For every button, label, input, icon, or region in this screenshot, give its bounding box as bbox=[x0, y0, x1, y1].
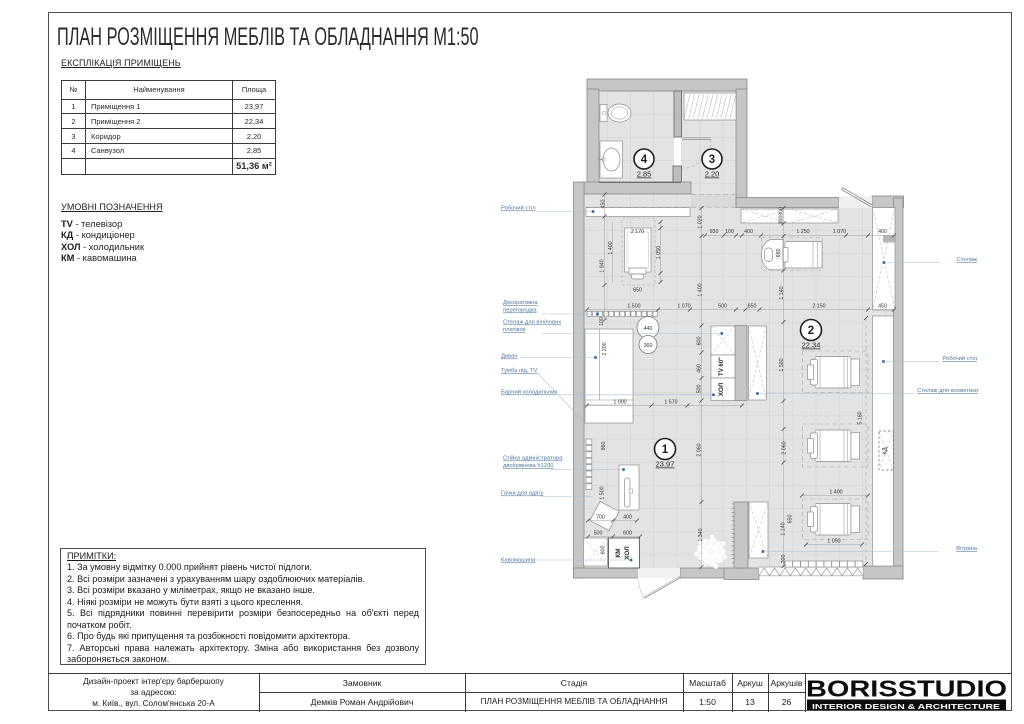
svg-text:Гачки для одягу: Гачки для одягу bbox=[501, 491, 544, 497]
svg-text:1 500: 1 500 bbox=[600, 486, 606, 499]
svg-text:Вітрина: Вітрина bbox=[956, 546, 977, 552]
svg-text:Стелаж для вінілових: Стелаж для вінілових bbox=[503, 320, 561, 326]
svg-text:2.85: 2.85 bbox=[637, 170, 652, 179]
svg-text:TV 60″: TV 60″ bbox=[719, 357, 725, 376]
svg-text:3: 3 bbox=[709, 154, 715, 166]
svg-text:450: 450 bbox=[601, 200, 607, 209]
svg-text:700: 700 bbox=[596, 515, 605, 521]
svg-text:1 940: 1 940 bbox=[600, 259, 606, 272]
svg-text:Стелаж: Стелаж bbox=[957, 257, 977, 263]
svg-text:Диван: Диван bbox=[501, 354, 518, 360]
svg-text:2 200: 2 200 bbox=[602, 342, 608, 355]
svg-text:1 070: 1 070 bbox=[677, 304, 690, 310]
svg-text:1 020: 1 020 bbox=[698, 215, 704, 228]
svg-text:Стійка адміністратора: Стійка адміністратора bbox=[503, 455, 563, 462]
svg-text:660: 660 bbox=[776, 249, 782, 258]
svg-text:Робочий стіл: Робочий стіл bbox=[942, 355, 977, 362]
svg-text:1: 1 bbox=[662, 444, 669, 456]
svg-text:360: 360 bbox=[644, 343, 653, 349]
svg-text:1 070: 1 070 bbox=[833, 229, 846, 235]
svg-text:600: 600 bbox=[697, 337, 703, 346]
svg-text:400: 400 bbox=[744, 229, 753, 235]
svg-text:930: 930 bbox=[710, 229, 719, 235]
svg-text:600: 600 bbox=[601, 546, 607, 555]
svg-text:300: 300 bbox=[779, 216, 785, 225]
svg-text:Барний холодильник: Барний холодильник bbox=[501, 389, 557, 396]
svg-text:500: 500 bbox=[594, 531, 603, 537]
svg-text:100: 100 bbox=[599, 317, 605, 326]
svg-text:650: 650 bbox=[748, 304, 757, 310]
svg-text:двохрівнева h1200: двохрівнева h1200 bbox=[503, 463, 553, 469]
svg-text:200: 200 bbox=[781, 555, 787, 564]
svg-text:КМ: КМ bbox=[615, 548, 622, 557]
svg-text:2 060: 2 060 bbox=[697, 443, 703, 456]
svg-text:ХОЛ: ХОЛ bbox=[718, 382, 725, 396]
svg-text:400: 400 bbox=[623, 515, 632, 521]
svg-text:1 500: 1 500 bbox=[627, 304, 640, 310]
svg-text:1 250: 1 250 bbox=[796, 229, 809, 235]
svg-text:Стелаж для косметики: Стелаж для косметики bbox=[917, 388, 978, 394]
svg-text:1 400: 1 400 bbox=[608, 241, 614, 254]
svg-text:1 050: 1 050 bbox=[656, 246, 662, 259]
svg-text:2.20: 2.20 bbox=[705, 170, 720, 179]
svg-text:650: 650 bbox=[788, 515, 794, 524]
svg-text:860: 860 bbox=[601, 442, 607, 451]
svg-text:440: 440 bbox=[644, 326, 653, 332]
svg-text:1 570: 1 570 bbox=[664, 400, 677, 406]
svg-text:300: 300 bbox=[779, 207, 785, 216]
svg-text:500: 500 bbox=[697, 385, 703, 394]
svg-text:2 150: 2 150 bbox=[812, 304, 825, 310]
svg-text:1 340: 1 340 bbox=[698, 528, 704, 541]
svg-text:400: 400 bbox=[878, 229, 887, 235]
svg-text:ХОЛ: ХОЛ bbox=[624, 546, 631, 560]
svg-text:1 140: 1 140 bbox=[781, 522, 787, 535]
svg-text:КД: КД bbox=[883, 447, 889, 454]
svg-text:450: 450 bbox=[878, 304, 887, 310]
svg-text:1 400: 1 400 bbox=[698, 283, 704, 296]
svg-text:23.97: 23.97 bbox=[656, 460, 675, 469]
svg-text:Кавомашина: Кавомашина bbox=[501, 558, 536, 564]
svg-text:22.34: 22.34 bbox=[802, 341, 821, 350]
svg-text:460: 460 bbox=[697, 364, 703, 373]
svg-text:1 000: 1 000 bbox=[613, 400, 626, 406]
svg-text:Робочий стіл: Робочий стіл bbox=[501, 205, 536, 212]
svg-text:1 050: 1 050 bbox=[827, 539, 840, 545]
svg-text:2 060: 2 060 bbox=[782, 441, 788, 454]
svg-text:4: 4 bbox=[641, 154, 648, 166]
svg-text:1 140: 1 140 bbox=[779, 286, 785, 299]
svg-text:100: 100 bbox=[725, 229, 734, 235]
svg-text:Декоративна: Декоративна bbox=[503, 300, 538, 306]
svg-text:650: 650 bbox=[633, 288, 642, 294]
svg-text:2 170: 2 170 bbox=[631, 229, 644, 235]
svg-text:500: 500 bbox=[718, 304, 727, 310]
svg-text:платівок: платівок bbox=[503, 327, 526, 333]
svg-text:600: 600 bbox=[623, 531, 632, 537]
svg-text:1 400: 1 400 bbox=[829, 490, 842, 496]
svg-text:2: 2 bbox=[808, 325, 814, 337]
svg-text:Тумба під, TV: Тумба під, TV bbox=[501, 368, 538, 374]
svg-text:перегородка: перегородка bbox=[503, 308, 537, 314]
svg-text:1 560: 1 560 bbox=[779, 358, 785, 371]
svg-text:5 160: 5 160 bbox=[858, 411, 864, 424]
